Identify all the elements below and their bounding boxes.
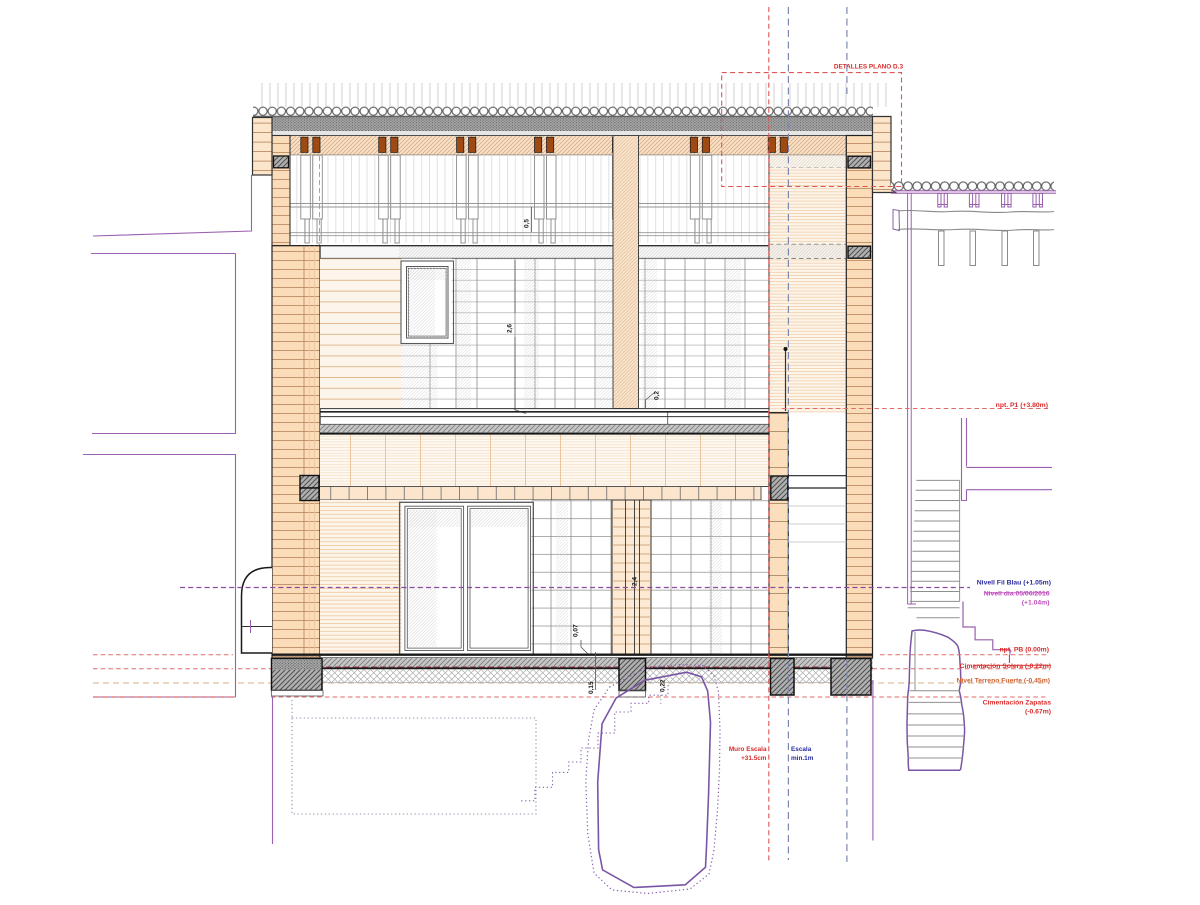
svg-text:Nivel Terreno Fuerte (-0.45m): Nivel Terreno Fuerte (-0.45m) <box>956 678 1050 685</box>
svg-text:+31.5cm: +31.5cm <box>741 755 767 762</box>
svg-text:npt. P1 (+3.80m): npt. P1 (+3.80m) <box>996 402 1048 409</box>
svg-text:npt. PB (0.00m): npt. PB (0.00m) <box>1000 647 1049 654</box>
svg-text:(-0.67m): (-0.67m) <box>1025 709 1051 716</box>
svg-text:Escala: Escala <box>791 746 812 753</box>
svg-text:(+1.04m): (+1.04m) <box>1022 600 1050 607</box>
svg-text:Nivell dia 05/06/2016: Nivell dia 05/06/2016 <box>984 591 1050 598</box>
svg-text:Nivell Fil Blau (+1.05m): Nivell Fil Blau (+1.05m) <box>977 580 1051 587</box>
svg-text:2,6: 2,6 <box>507 324 514 333</box>
svg-text:2,4: 2,4 <box>632 577 639 586</box>
svg-text:0,5: 0,5 <box>524 219 531 228</box>
svg-text:Cimentación Zapatas: Cimentación Zapatas <box>983 700 1052 707</box>
svg-text:0,2: 0,2 <box>654 391 661 400</box>
svg-text:0,15: 0,15 <box>588 681 595 694</box>
svg-text:0,22: 0,22 <box>660 679 667 692</box>
svg-text:Cimentación Solera (-0.22m): Cimentación Solera (-0.22m) <box>960 663 1051 670</box>
svg-text:0,07: 0,07 <box>573 624 580 637</box>
svg-text:DETALLES PLANO D.3: DETALLES PLANO D.3 <box>834 63 904 70</box>
svg-text:min.1m: min.1m <box>791 755 814 762</box>
svg-text:Muro Escala: Muro Escala <box>729 746 767 753</box>
